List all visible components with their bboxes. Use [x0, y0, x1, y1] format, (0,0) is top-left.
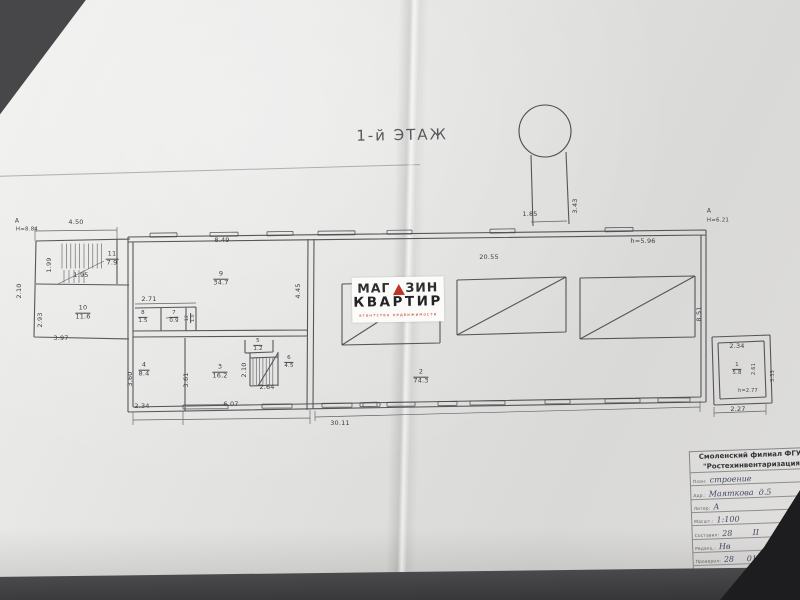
room-8: 81.5 — [138, 310, 147, 324]
titleblock-field-value: строение — [710, 476, 752, 485]
watermark-tagline: агентство недвижимости — [359, 311, 437, 317]
watermark: МАГ ЗИН КВАРТИР агентство недвижимости — [352, 276, 445, 323]
titleblock-field-label: Литер: — [694, 507, 711, 513]
dim-2-34-left: 2.34 — [134, 403, 149, 411]
dim-3-43: 3.43 — [572, 198, 580, 213]
dim-2-34-right: 2.34 — [729, 343, 744, 351]
titleblock-field-value: Нв — [719, 543, 731, 551]
room-3: 316.2 — [212, 364, 227, 381]
dim-20-55: 20.55 — [479, 254, 499, 262]
dim-2-27: 2.27 — [730, 406, 745, 414]
room-2: 274.3 — [413, 369, 428, 386]
room-11: 117.9 — [106, 251, 119, 268]
dim-2-64: 2.64 — [259, 384, 274, 392]
dim-3-61: 3.61 — [183, 372, 191, 387]
room-4: 48.4 — [139, 362, 150, 379]
dim-3-97: 3.97 — [53, 335, 68, 343]
height-5-96: h=5.96 — [630, 238, 655, 246]
dim-4-45: 4.45 — [295, 283, 303, 298]
height-6-21: Н=6.21 — [707, 218, 729, 225]
room-9: 934.7 — [213, 271, 228, 288]
dim-2-10-stairs: 2.10 — [241, 362, 249, 377]
room-1: 15.8 — [732, 362, 741, 376]
dim-1-99: 1.99 — [46, 257, 54, 272]
dim-8-51: 8.51 — [696, 306, 704, 321]
height-left: Н=8.84 — [16, 227, 38, 234]
watermark-brand-line2: КВАРТИР — [353, 294, 443, 311]
titleblock-field-value: 28 II — [722, 529, 759, 538]
height-2-77: h=2.77 — [738, 388, 758, 394]
dim-2-71: 2.71 — [141, 296, 156, 304]
dim-3-33: 3.33 — [770, 370, 776, 382]
dim-6-07: 6.07 — [223, 401, 238, 409]
marker-a-left: А — [15, 217, 19, 224]
marker-a-right: А — [707, 207, 711, 214]
dim-1-95: 1.95 — [73, 272, 88, 280]
room-12: 121.0 — [185, 313, 197, 323]
dim-4-50: 4.50 — [68, 219, 83, 227]
room-10: 1011.6 — [75, 305, 90, 322]
titleblock-field-label: Адр.: — [693, 493, 706, 498]
titleblock-field-label: План: — [693, 480, 707, 485]
titleblock-field-label: Масшт.: — [694, 520, 714, 526]
dim-8-49: 8.49 — [214, 237, 229, 245]
titleblock-field-label: Проверил: — [696, 559, 721, 565]
titleblock-field-label: Редакц.: — [695, 546, 716, 552]
room-6: 64.5 — [284, 355, 293, 369]
titleblock-field-label: Составил: — [695, 533, 720, 539]
titleblock-field-value: 1:100 — [716, 516, 739, 525]
dim-1-85: 1.85 — [522, 211, 537, 219]
dim-2-93: 2.93 — [37, 312, 45, 327]
room-5: 51.2 — [253, 338, 262, 352]
photo-of-floor-plan: 1-й ЭТАЖ АН=8.844.50117.91.991.952.10101… — [0, 0, 800, 600]
dim-30-11: 30.11 — [330, 420, 350, 428]
dim-2-10-left: 2.10 — [16, 283, 24, 298]
room-7: 70.9 — [169, 310, 178, 324]
titleblock-field-value: А — [713, 503, 719, 511]
dim-3-60: 3.60 — [127, 371, 135, 386]
dim-2-61: 2.61 — [751, 363, 757, 375]
